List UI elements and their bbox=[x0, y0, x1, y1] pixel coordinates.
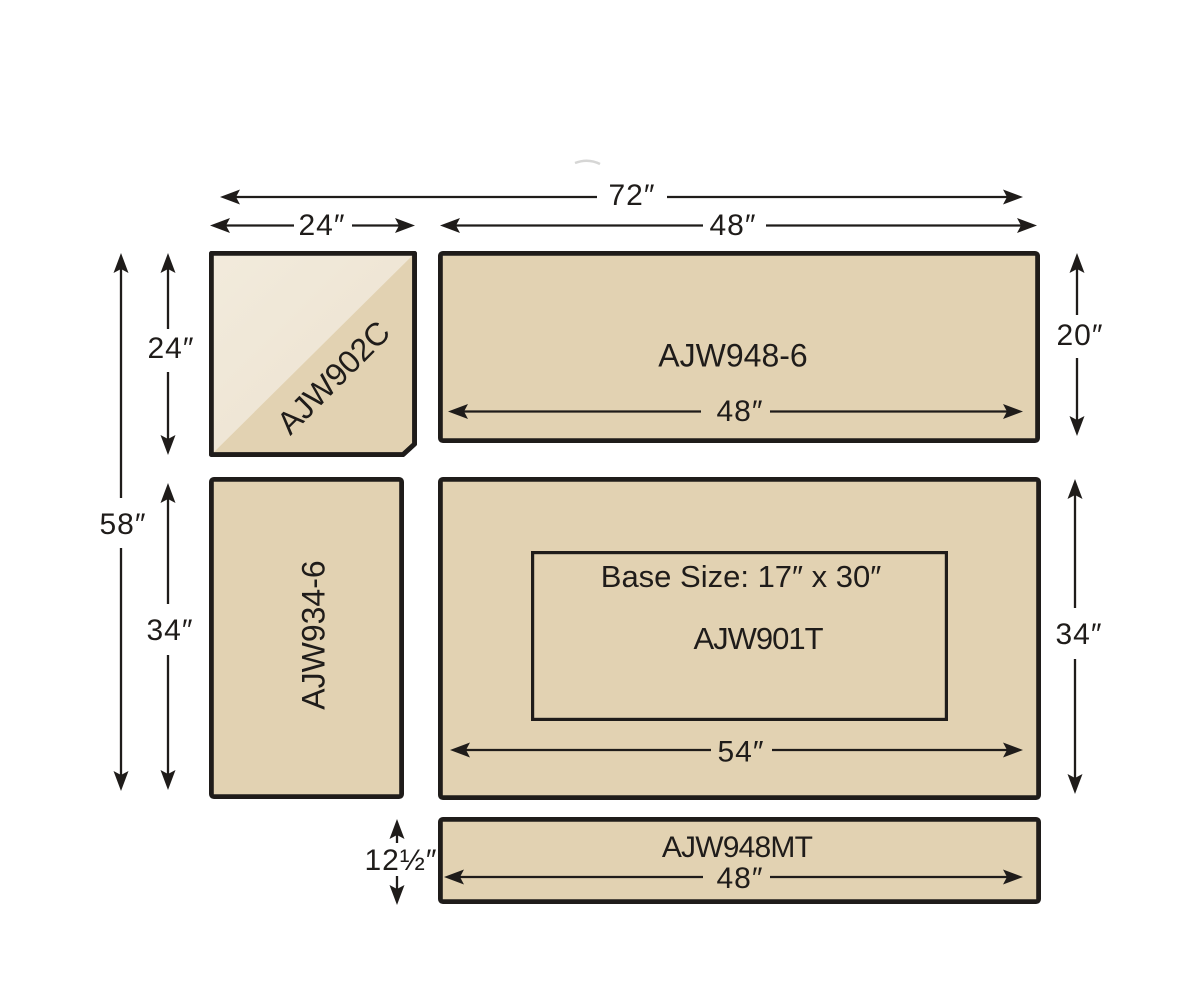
svg-text:72″: 72″ bbox=[609, 179, 656, 212]
svg-text:58″: 58″ bbox=[100, 508, 147, 541]
svg-text:20″: 20″ bbox=[1057, 319, 1104, 352]
svg-text:24″: 24″ bbox=[148, 332, 195, 365]
svg-text:AJW901T: AJW901T bbox=[693, 621, 823, 656]
svg-text:AJW948-6: AJW948-6 bbox=[658, 338, 807, 374]
svg-text:48″: 48″ bbox=[717, 395, 764, 428]
svg-text:48″: 48″ bbox=[710, 209, 757, 242]
svg-text:34″: 34″ bbox=[1056, 618, 1103, 651]
svg-text:12½″: 12½″ bbox=[364, 844, 437, 877]
svg-text:34″: 34″ bbox=[147, 614, 194, 647]
svg-text:48″: 48″ bbox=[717, 862, 764, 895]
svg-text:54″: 54″ bbox=[718, 735, 765, 768]
svg-text:24″: 24″ bbox=[299, 209, 346, 242]
svg-text:AJW948MT: AJW948MT bbox=[662, 831, 813, 864]
svg-text:AJW934-6: AJW934-6 bbox=[296, 560, 332, 709]
svg-text:Base Size: 17″ x 30″: Base Size: 17″ x 30″ bbox=[601, 559, 881, 594]
